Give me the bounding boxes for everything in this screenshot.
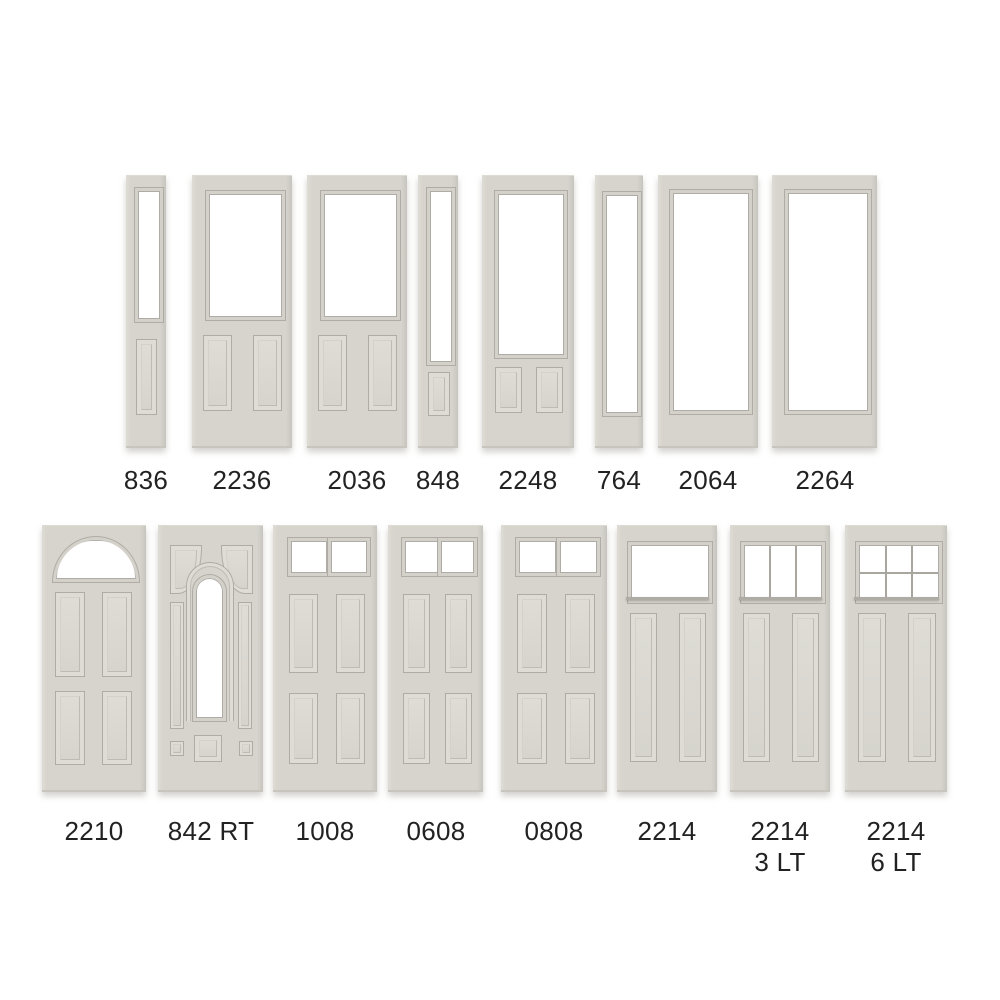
door-2236 xyxy=(192,175,292,448)
raised-panel xyxy=(517,693,547,764)
raised-panel xyxy=(203,335,232,411)
glass-lite xyxy=(557,538,600,576)
glass-lite xyxy=(328,538,370,576)
raised-panel xyxy=(102,592,132,677)
glass-pane xyxy=(771,546,795,599)
glass-lite xyxy=(427,188,455,365)
door-code: 2214 xyxy=(836,816,956,847)
raised-panel xyxy=(630,613,657,762)
muntin-grid xyxy=(745,546,821,599)
door-label-842-rt: 842 RT xyxy=(151,816,271,847)
door-code: 0608 xyxy=(376,816,496,847)
door-label-2214: 2214 xyxy=(607,816,727,847)
raised-panel xyxy=(536,367,563,413)
door-842-rt xyxy=(158,525,263,792)
glass-lite xyxy=(603,192,641,416)
raised-panel xyxy=(743,613,770,762)
door-code: 842 RT xyxy=(151,816,271,847)
glass-pane xyxy=(887,574,912,600)
door-code-sub: 3 LT xyxy=(720,847,840,878)
raised-panel xyxy=(565,693,595,764)
raised-panel xyxy=(102,691,132,765)
door-label-0808: 0808 xyxy=(494,816,614,847)
glass-lite xyxy=(438,538,477,576)
glass-pane xyxy=(860,574,885,600)
door-code: 2214 xyxy=(720,816,840,847)
door-2036 xyxy=(307,175,407,448)
small-panel xyxy=(239,741,253,756)
glass-lite xyxy=(321,191,400,320)
muntin-grid xyxy=(860,546,938,599)
door-label-1008: 1008 xyxy=(265,816,385,847)
raised-panel xyxy=(403,693,430,764)
door-2264 xyxy=(772,175,877,448)
small-panel xyxy=(170,741,184,756)
narrow-panel xyxy=(170,602,184,729)
door-label-2264: 2264 xyxy=(765,465,885,496)
window-lites xyxy=(628,542,712,603)
raised-panel xyxy=(194,735,222,762)
raised-panel xyxy=(289,594,318,673)
door-label-2214-6-lt: 22146 LT xyxy=(836,816,956,878)
door-2064 xyxy=(658,175,758,448)
raised-panel xyxy=(495,367,522,413)
glass-lite xyxy=(516,538,559,576)
raised-panel xyxy=(336,594,365,673)
glass-pane xyxy=(913,574,938,600)
door-code: 2064 xyxy=(648,465,768,496)
raised-panel xyxy=(908,613,936,762)
raised-panel xyxy=(55,691,85,765)
door-0608 xyxy=(388,525,483,792)
glass-pane xyxy=(797,546,821,599)
door-label-0608: 0608 xyxy=(376,816,496,847)
door-2214-6-lt xyxy=(845,525,947,792)
glass-lite xyxy=(288,538,330,576)
window-sill xyxy=(626,597,709,600)
glass-lite xyxy=(785,190,871,414)
glass-lite xyxy=(206,191,285,320)
raised-panel xyxy=(428,372,450,416)
door-code-sub: 6 LT xyxy=(836,847,956,878)
window-lites xyxy=(856,542,942,603)
door-code: 2210 xyxy=(34,816,154,847)
raised-panel xyxy=(517,594,547,673)
door-1008 xyxy=(273,525,377,792)
raised-panel xyxy=(565,594,595,673)
raised-panel xyxy=(368,335,397,411)
raised-panel xyxy=(679,613,706,762)
raised-panel xyxy=(445,693,472,764)
door-836 xyxy=(126,175,166,448)
glass-pane xyxy=(632,546,708,599)
window-sill xyxy=(739,597,822,600)
door-0808 xyxy=(501,525,607,792)
door-2214 xyxy=(617,525,717,792)
raised-panel xyxy=(289,693,318,764)
door-code: 1008 xyxy=(265,816,385,847)
glass-pane xyxy=(913,546,938,572)
door-2210 xyxy=(42,525,146,792)
door-code: 2264 xyxy=(765,465,885,496)
glass-pane xyxy=(887,546,912,572)
glass-pane xyxy=(745,546,769,599)
door-label-2236: 2236 xyxy=(182,465,302,496)
raised-panel xyxy=(318,335,347,411)
raised-panel xyxy=(403,594,430,673)
fan-lite xyxy=(53,537,139,582)
door-764 xyxy=(595,175,643,448)
door-code: 0808 xyxy=(494,816,614,847)
raised-panel xyxy=(253,335,282,411)
door-code: 2214 xyxy=(607,816,727,847)
window-sill xyxy=(854,597,939,600)
door-label-2064: 2064 xyxy=(648,465,768,496)
door-code: 2236 xyxy=(182,465,302,496)
raised-panel xyxy=(55,592,85,677)
door-label-2214-3-lt: 22143 LT xyxy=(720,816,840,878)
door-2248 xyxy=(482,175,574,448)
muntin-grid xyxy=(632,546,708,599)
glass-lite xyxy=(402,538,441,576)
door-2214-3-lt xyxy=(730,525,830,792)
raised-panel xyxy=(336,693,365,764)
window-lites xyxy=(741,542,825,603)
glass-lite xyxy=(495,191,567,358)
arch-lite xyxy=(193,575,226,721)
glass-pane xyxy=(860,546,885,572)
glass-lite xyxy=(670,190,752,414)
narrow-panel xyxy=(238,602,252,729)
door-848 xyxy=(418,175,458,448)
raised-panel xyxy=(445,594,472,673)
raised-panel xyxy=(858,613,886,762)
raised-panel xyxy=(136,339,157,415)
raised-panel xyxy=(792,613,819,762)
door-label-2210: 2210 xyxy=(34,816,154,847)
door-style-catalog: 836223620368482248764206422642210842 RT1… xyxy=(0,0,1000,1000)
glass-lite xyxy=(135,188,163,322)
